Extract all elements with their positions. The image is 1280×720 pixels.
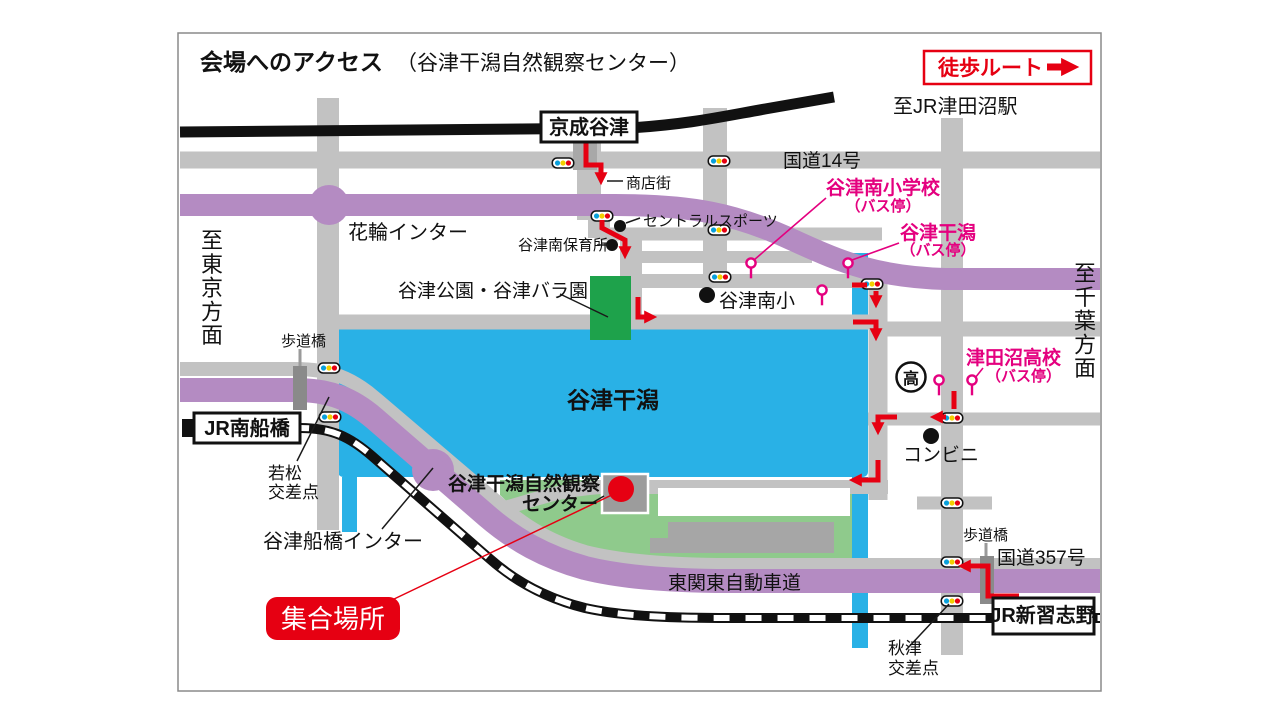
label-busstop-tsudanuma-koko-sub: （バス停） xyxy=(986,367,1061,385)
signal-icon xyxy=(708,156,729,166)
highschool-kanji: 高 xyxy=(903,369,919,388)
station-label: JR新習志野 xyxy=(990,603,1096,627)
label-busstop-minami-shogakko: 谷津南小学校 xyxy=(826,176,941,199)
label-nature-center-1: 谷津干潟自然観察 xyxy=(448,472,601,495)
label-busstop-tsudanuma-koko: 津田沼高校 xyxy=(966,346,1062,369)
central-sports-dot xyxy=(614,220,626,232)
station-keisei-yatsu: 京成谷津 xyxy=(541,112,637,142)
direction-to-tokyo: 至東京方面 xyxy=(201,228,223,348)
signal-icon xyxy=(709,272,730,282)
label-park-rose: 谷津公園・谷津バラ園 xyxy=(398,280,588,302)
yatsu-minami-sho-dot xyxy=(699,287,715,303)
meeting-point-badge: 集合場所 xyxy=(266,597,400,640)
label-akitsu-1: 秋津 xyxy=(888,639,922,658)
page-title: 会場へのアクセス xyxy=(200,49,383,75)
label-busstop-minami-shogakko-sub: （バス停） xyxy=(845,197,920,215)
label-wakamatsu-2: 交差点 xyxy=(268,483,319,502)
label-shotengai: 商店街 xyxy=(626,175,671,192)
label-hodokyo-west: 歩道橋 xyxy=(281,333,326,350)
meeting-point-marker xyxy=(608,476,634,502)
signal-icon xyxy=(941,498,962,508)
pedestrian-bridge-west xyxy=(293,366,307,410)
walk-route-legend: 徒歩ルート xyxy=(924,51,1091,84)
direction-to-chiba: 至千葉方面 xyxy=(1074,261,1096,381)
rose-garden-block xyxy=(590,276,631,340)
label-expressway: 東関東自動車道 xyxy=(668,572,801,594)
label-central-sports: セントラルスポーツ xyxy=(643,213,778,230)
meeting-point-label: 集合場所 xyxy=(281,604,385,634)
konbini-dot xyxy=(923,428,939,444)
signal-icon xyxy=(319,412,340,422)
signal-icon xyxy=(552,158,573,168)
label-akitsu-2: 交差点 xyxy=(888,659,939,678)
park-building-step xyxy=(650,538,668,553)
label-tidal-flat: 谷津干潟 xyxy=(567,387,659,413)
channel-southwest xyxy=(342,477,357,532)
station-label: 京成谷津 xyxy=(549,115,629,139)
station-label: JR南船橋 xyxy=(204,416,291,440)
label-yatsu-funabashi-ic: 谷津船橋インター xyxy=(263,530,423,553)
signal-icon xyxy=(591,211,612,221)
signal-icon xyxy=(941,596,962,606)
signal-icon xyxy=(318,363,339,373)
direction-to-jr-tsudanuma: 至JR津田沼駅 xyxy=(893,95,1017,118)
station-jr-shin-narashino: JR新習志野 xyxy=(990,598,1096,634)
label-busstop-yatsu-higata-sub: （バス停） xyxy=(900,241,975,259)
label-hanawa-ic: 花輪インター xyxy=(348,221,468,244)
highschool-mark: 高 xyxy=(897,363,926,392)
label-nature-center-2: センター xyxy=(522,493,598,515)
page-subtitle: （谷津干潟自然観察センター） xyxy=(396,52,690,75)
label-wakamatsu-1: 若松 xyxy=(268,464,302,483)
label-hodokyo-east: 歩道橋 xyxy=(963,527,1008,544)
park-building xyxy=(668,522,834,553)
station-jr-minami-funabashi: JR南船橋 xyxy=(194,413,300,443)
access-map: 高 会場へのアクセス （谷津干潟自然観察センター） 徒歩 xyxy=(0,0,1280,720)
legend-label: 徒歩ルート xyxy=(937,56,1043,80)
signal-icon xyxy=(941,557,962,567)
label-route14: 国道14号 xyxy=(783,150,861,172)
label-yatsu-minami-sho: 谷津南小 xyxy=(719,290,795,312)
label-busstop-yatsu-higata: 谷津干潟 xyxy=(900,221,976,244)
label-konbini: コンビニ xyxy=(903,444,979,466)
label-route357: 国道357号 xyxy=(997,547,1086,569)
label-hoikusho: 谷津南保育所 xyxy=(518,237,608,254)
center-approach xyxy=(658,488,850,516)
